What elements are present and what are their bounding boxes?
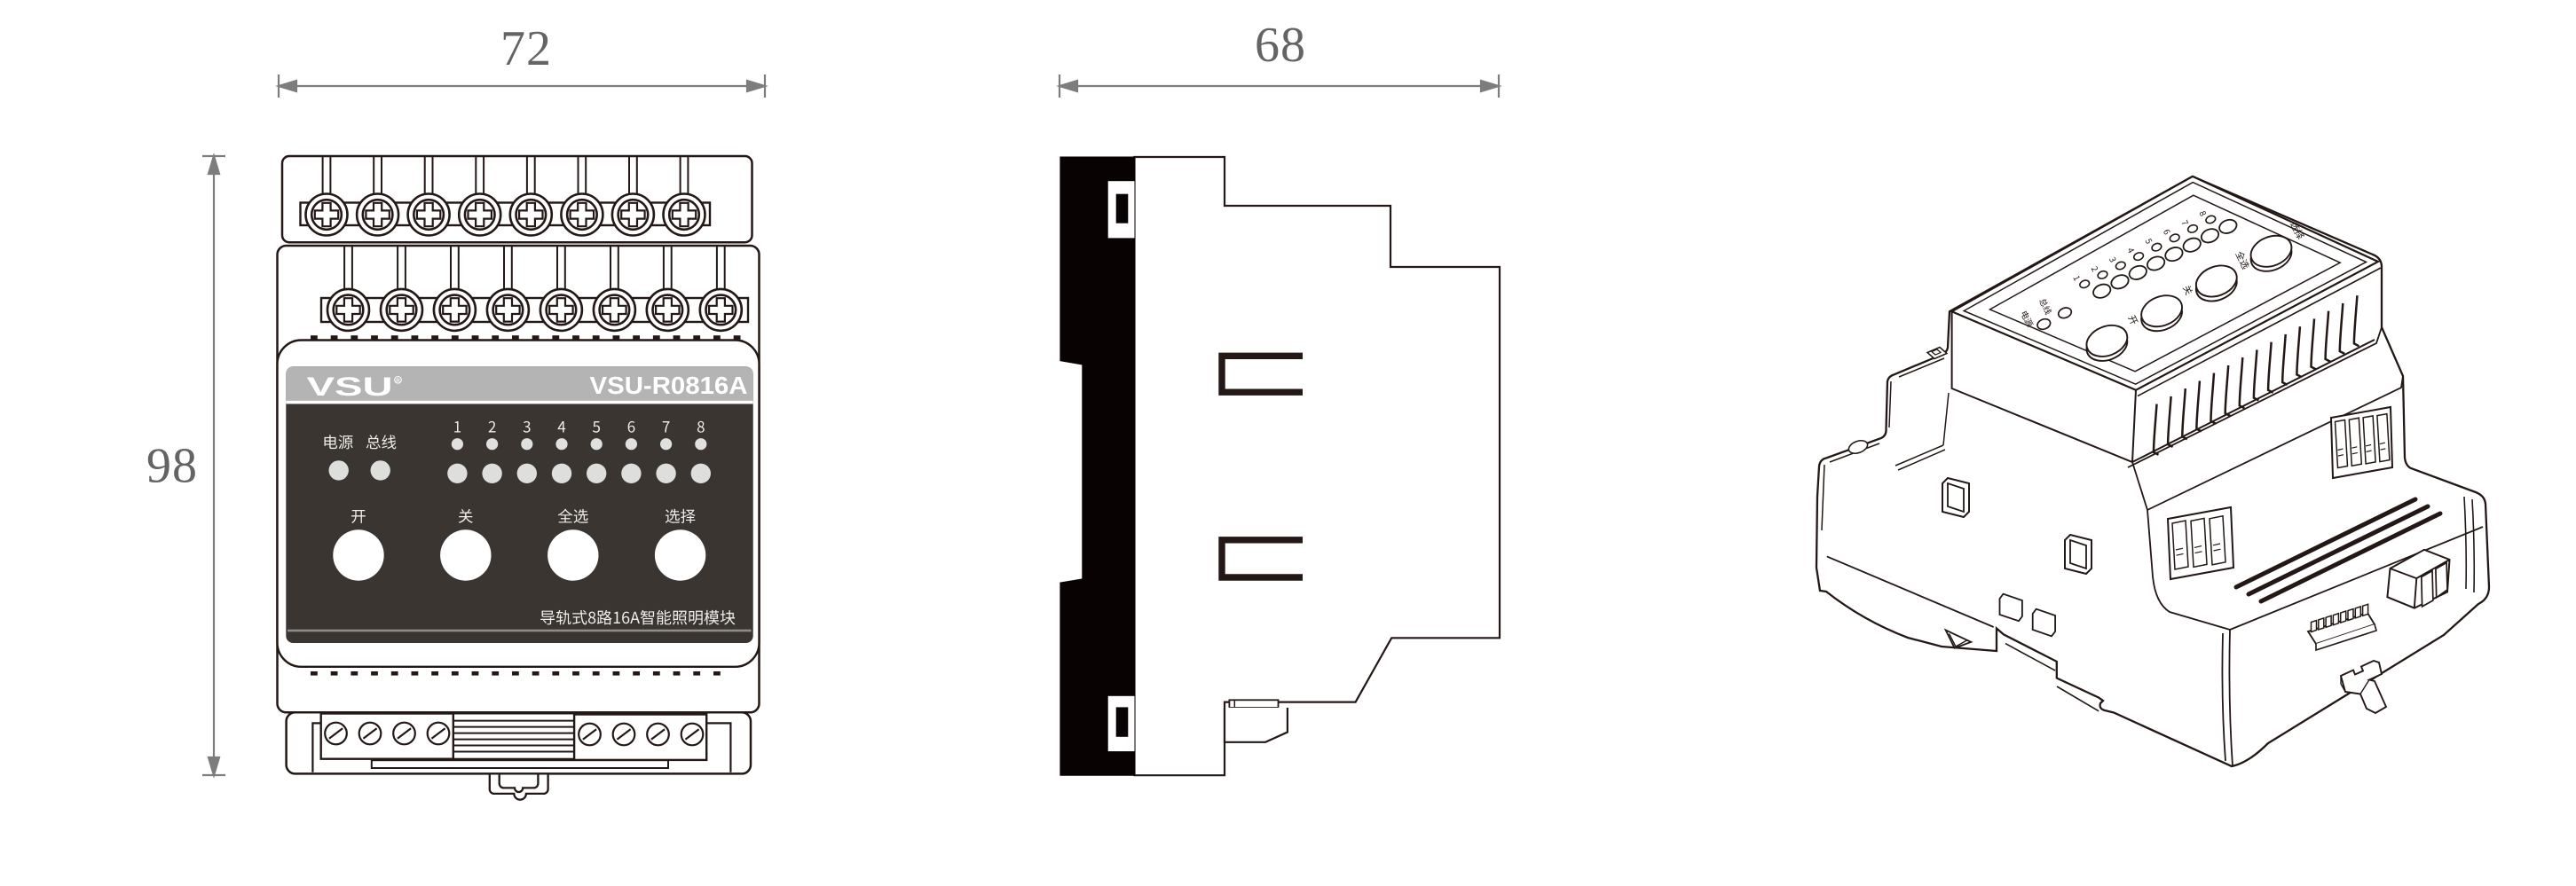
- svg-text:72: 72: [500, 21, 552, 76]
- svg-text:VSU-R0816A: VSU-R0816A: [590, 372, 748, 399]
- svg-text:68: 68: [1255, 18, 1306, 73]
- svg-text:R: R: [396, 379, 400, 384]
- svg-text:98: 98: [146, 439, 198, 494]
- svg-text:VSU: VSU: [307, 372, 393, 402]
